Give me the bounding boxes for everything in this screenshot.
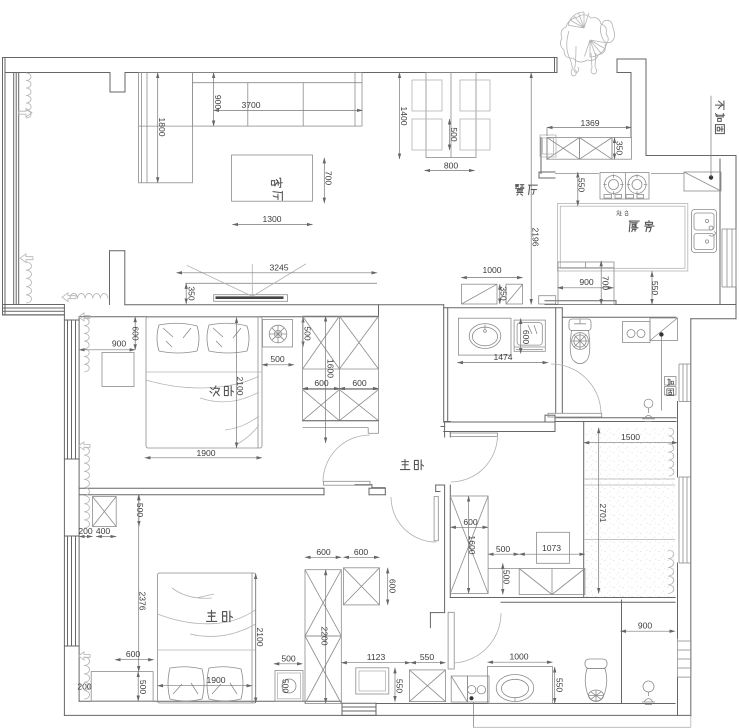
svg-text:1300: 1300 xyxy=(262,214,281,224)
svg-text:1500: 1500 xyxy=(621,432,640,442)
svg-text:1900: 1900 xyxy=(206,675,225,685)
svg-text:550: 550 xyxy=(577,178,587,193)
svg-text:200: 200 xyxy=(78,526,93,536)
svg-text:1474: 1474 xyxy=(493,352,512,362)
svg-text:2100: 2100 xyxy=(255,627,265,646)
svg-text:350: 350 xyxy=(499,286,509,301)
svg-text:600: 600 xyxy=(521,330,531,345)
svg-text:1000: 1000 xyxy=(509,652,528,662)
svg-text:550: 550 xyxy=(650,281,660,296)
svg-text:2196: 2196 xyxy=(531,227,541,246)
svg-text:550: 550 xyxy=(420,652,435,662)
svg-text:600: 600 xyxy=(352,378,367,388)
svg-text:700: 700 xyxy=(601,276,611,291)
svg-text:200: 200 xyxy=(77,682,92,692)
svg-text:550: 550 xyxy=(395,679,405,694)
svg-text:500: 500 xyxy=(496,544,511,554)
svg-text:500: 500 xyxy=(138,680,148,695)
svg-text:600: 600 xyxy=(463,517,478,527)
svg-text:350: 350 xyxy=(187,286,197,301)
svg-text:350: 350 xyxy=(615,141,625,156)
svg-text:1800: 1800 xyxy=(157,117,167,136)
svg-text:500: 500 xyxy=(270,354,285,364)
svg-text:1900: 1900 xyxy=(196,448,215,458)
svg-text:600: 600 xyxy=(314,378,329,388)
svg-text:600: 600 xyxy=(354,547,369,557)
svg-text:1073: 1073 xyxy=(542,543,561,553)
svg-text:3245: 3245 xyxy=(269,263,288,273)
svg-text:2701: 2701 xyxy=(598,503,608,522)
svg-text:2200: 2200 xyxy=(320,626,330,645)
svg-text:600: 600 xyxy=(388,579,398,594)
svg-text:600: 600 xyxy=(126,649,141,659)
svg-text:500: 500 xyxy=(449,127,459,142)
svg-text:2376: 2376 xyxy=(138,591,148,610)
svg-text:900: 900 xyxy=(213,95,223,110)
svg-text:900: 900 xyxy=(112,339,127,349)
svg-text:500: 500 xyxy=(135,503,145,518)
svg-text:600: 600 xyxy=(131,326,141,341)
svg-text:3700: 3700 xyxy=(241,100,260,110)
svg-text:1600: 1600 xyxy=(467,535,477,554)
svg-text:500: 500 xyxy=(281,679,291,694)
svg-text:1123: 1123 xyxy=(367,652,386,662)
svg-text:700: 700 xyxy=(324,171,334,186)
svg-text:400: 400 xyxy=(96,526,111,536)
svg-text:800: 800 xyxy=(444,160,459,170)
svg-text:1600: 1600 xyxy=(326,359,336,378)
svg-text:600: 600 xyxy=(316,547,331,557)
svg-text:2100: 2100 xyxy=(235,376,245,395)
svg-text:900: 900 xyxy=(638,621,653,631)
svg-text:900: 900 xyxy=(579,277,594,287)
svg-text:500: 500 xyxy=(502,570,512,585)
svg-text:500: 500 xyxy=(281,653,296,663)
svg-text:550: 550 xyxy=(555,678,565,693)
svg-text:1000: 1000 xyxy=(482,265,501,275)
svg-text:1400: 1400 xyxy=(399,106,409,125)
svg-text:1369: 1369 xyxy=(580,118,599,128)
